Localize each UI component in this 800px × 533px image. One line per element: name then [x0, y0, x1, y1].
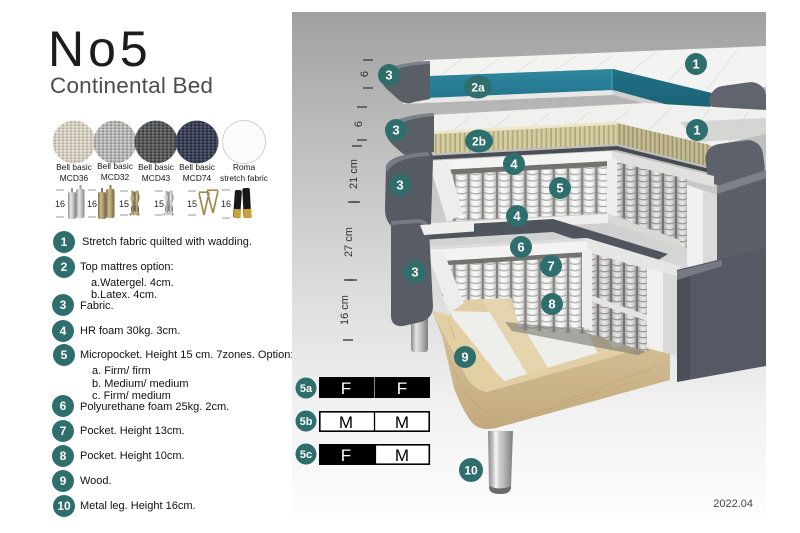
svg-text:F: F: [341, 446, 351, 465]
svg-text:1: 1: [692, 57, 699, 72]
svg-text:7: 7: [547, 259, 554, 274]
svg-text:3: 3: [396, 178, 403, 193]
svg-text:16 cm: 16 cm: [339, 295, 351, 325]
svg-text:F: F: [397, 379, 407, 398]
svg-text:21 cm: 21 cm: [348, 159, 360, 189]
svg-text:3: 3: [392, 123, 399, 138]
svg-text:4: 4: [513, 209, 521, 224]
svg-text:5c: 5c: [300, 449, 312, 461]
svg-text:5b: 5b: [300, 416, 313, 428]
svg-text:5a: 5a: [300, 383, 313, 395]
svg-text:4: 4: [510, 157, 518, 172]
svg-text:1: 1: [693, 123, 700, 138]
svg-text:M: M: [395, 446, 409, 465]
svg-text:5: 5: [556, 181, 563, 196]
svg-text:6: 6: [359, 71, 371, 77]
svg-text:M: M: [339, 413, 353, 432]
svg-text:8: 8: [548, 297, 555, 312]
svg-text:F: F: [341, 379, 351, 398]
svg-text:2a: 2a: [471, 81, 485, 95]
svg-text:9: 9: [461, 350, 468, 365]
svg-text:3: 3: [385, 68, 392, 83]
svg-text:27 cm: 27 cm: [343, 227, 355, 257]
svg-text:6: 6: [517, 240, 524, 255]
svg-text:3: 3: [411, 265, 418, 280]
svg-text:10: 10: [464, 464, 478, 478]
svg-text:M: M: [395, 413, 409, 432]
svg-text:2022.04: 2022.04: [713, 498, 753, 510]
svg-text:2b: 2b: [472, 135, 486, 149]
svg-text:6: 6: [353, 121, 365, 127]
